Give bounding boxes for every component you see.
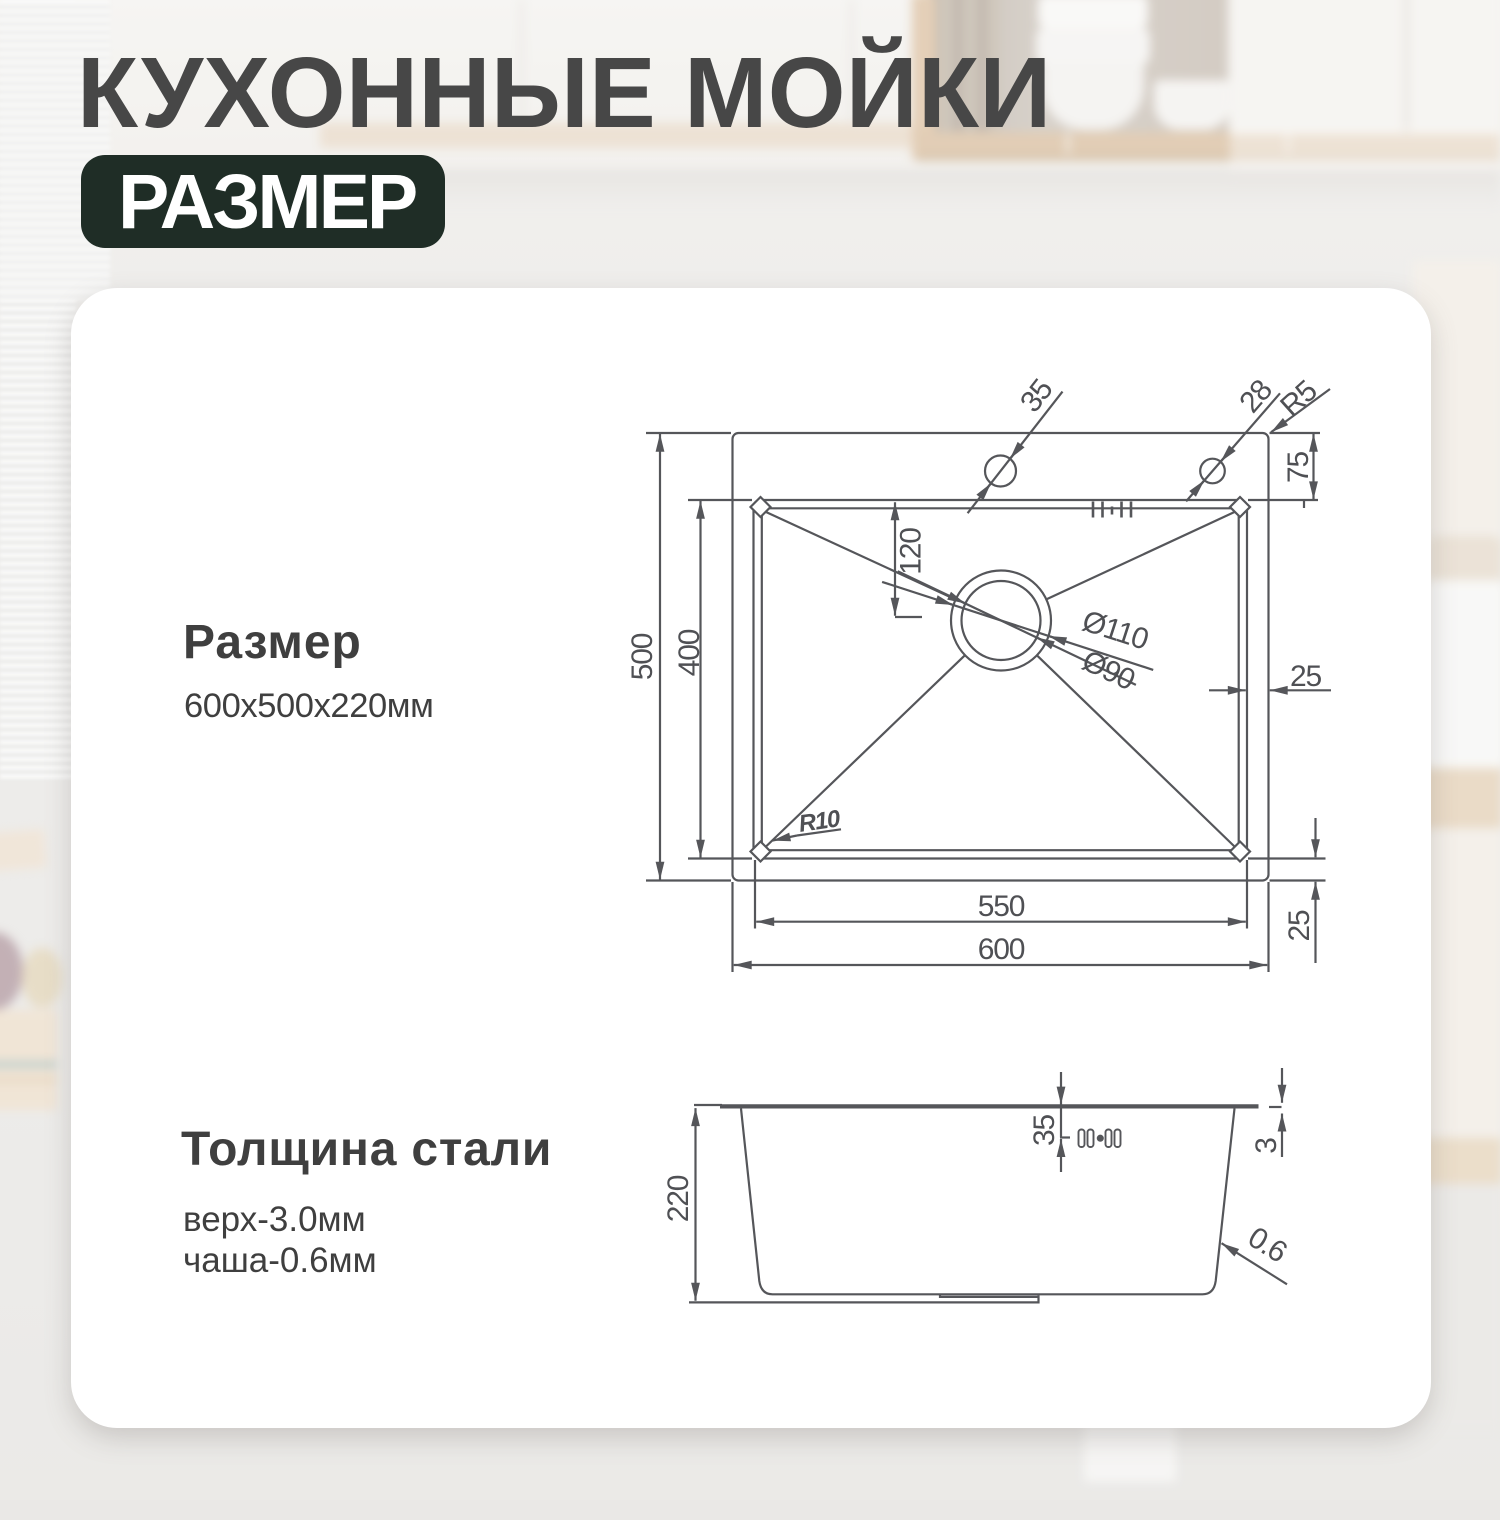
svg-text:R5: R5: [1274, 374, 1323, 423]
svg-text:600: 600: [978, 933, 1025, 966]
svg-text:75: 75: [1282, 452, 1315, 483]
svg-text:550: 550: [978, 890, 1025, 923]
svg-text:500: 500: [626, 633, 659, 680]
svg-text:3: 3: [1250, 1138, 1283, 1154]
svg-text:25: 25: [1283, 910, 1316, 941]
svg-text:35: 35: [1014, 373, 1059, 418]
svg-text:28: 28: [1233, 374, 1279, 419]
svg-text:400: 400: [673, 629, 706, 676]
svg-text:120: 120: [895, 528, 928, 575]
svg-text:25: 25: [1290, 660, 1321, 693]
svg-text:35: 35: [1028, 1115, 1061, 1146]
svg-text:R10: R10: [797, 805, 843, 838]
svg-text:220: 220: [662, 1175, 695, 1222]
